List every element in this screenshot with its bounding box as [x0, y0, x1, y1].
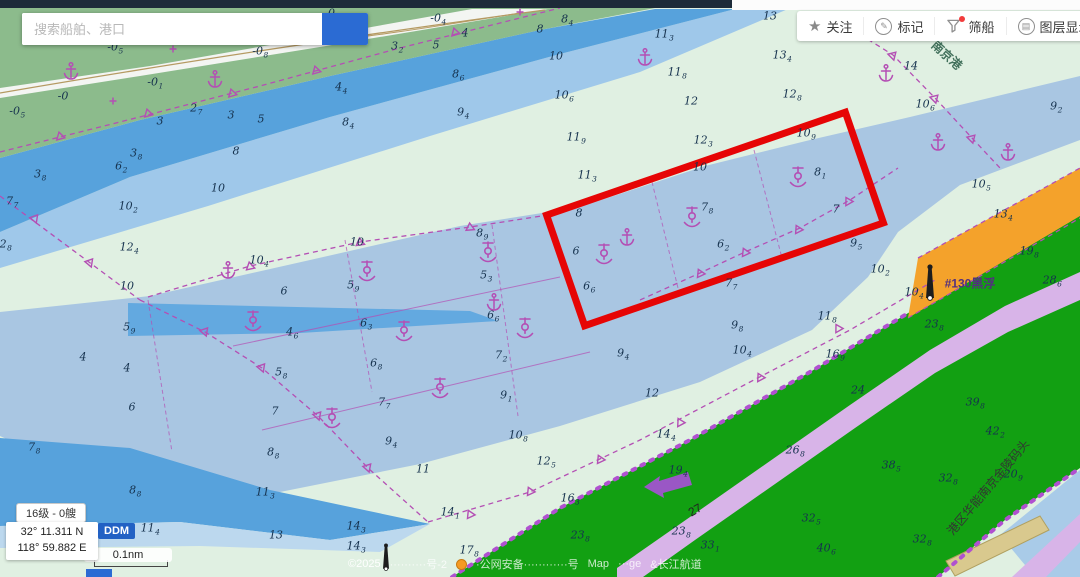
depth-sounding: 143	[347, 540, 366, 553]
depth-sounding: 134	[994, 208, 1013, 221]
depth-sounding: 77	[378, 396, 390, 409]
anchor-symbol	[639, 49, 652, 65]
layers-label: 图层显示	[1040, 17, 1080, 36]
funnel-icon	[946, 18, 963, 35]
depth-sounding: 118	[668, 66, 687, 79]
depth-sounding: 8	[233, 145, 240, 158]
depth-sounding: 106	[555, 89, 574, 102]
depth-sounding: 72	[495, 349, 507, 362]
boundary-dashed-line	[640, 168, 898, 300]
depth-sounding: 118	[818, 310, 837, 323]
depth-sounding: 84	[561, 13, 573, 26]
highlight-red-box	[547, 112, 884, 326]
depth-sounding: 10	[120, 280, 134, 293]
depth-sounding: -01	[147, 76, 163, 89]
depth-sounding: 58	[275, 366, 287, 379]
depth-sounding: 144	[657, 428, 676, 441]
depth-sounding: 10	[211, 182, 225, 195]
depth-sounding: 44	[335, 81, 347, 94]
depth-sounding: 8	[576, 207, 583, 220]
depth-sounding: 198	[1020, 245, 1039, 258]
channel-credit: &长江航道	[650, 556, 701, 572]
depth-sounding: 81	[814, 166, 826, 179]
triangle-symbol	[450, 27, 460, 36]
depth-sounding: 113	[578, 169, 597, 182]
depth-sounding: -0	[58, 90, 69, 103]
depth-sounding: 62	[115, 160, 127, 173]
depth-sounding: 77	[6, 195, 18, 208]
depth-sounding: 143	[347, 520, 366, 533]
anchorage-berth-symbol	[433, 378, 448, 398]
search-bar	[22, 13, 368, 45]
triangle-symbol	[695, 268, 706, 278]
depth-sounding: 84	[342, 116, 354, 129]
depth-sounding: 88	[129, 484, 141, 497]
depth-sounding: 94	[457, 106, 469, 119]
triangle-symbol	[740, 247, 751, 257]
depth-sounding: -08	[252, 45, 268, 58]
depth-sounding: 105	[972, 178, 991, 191]
depth-sounding: 8	[537, 23, 544, 36]
anchor-symbol	[65, 63, 78, 79]
depth-sounding: 10	[350, 236, 364, 249]
top-dark-strip	[0, 0, 732, 8]
anchorage-berth-symbol	[481, 242, 496, 262]
depth-sounding: 46	[286, 326, 298, 339]
chart-label: 南京港	[928, 37, 966, 74]
depth-sounding: 88	[267, 446, 279, 459]
depth-sounding: 86	[452, 68, 464, 81]
depth-sounding: 11	[416, 463, 430, 476]
depth-sounding: 38	[34, 168, 46, 181]
anchorage-berth-symbol	[685, 207, 700, 227]
depth-sounding: 108	[509, 429, 528, 442]
boundary-dashed-line	[908, 218, 1080, 318]
depth-sounding: 4	[80, 351, 87, 364]
depth-sounding: 178	[460, 544, 479, 557]
chart-label: 港区华能南京金陵码头	[943, 436, 1033, 539]
partial-blue-badge	[86, 569, 112, 577]
depth-sounding: -05	[9, 105, 25, 118]
depth-sounding: -04	[430, 12, 446, 25]
depth-sounding: 92	[1050, 100, 1062, 113]
depth-sounding: 94	[617, 347, 629, 360]
mark-label: 标记	[897, 17, 923, 36]
depth-sounding: 119	[567, 131, 586, 144]
anchor-symbol	[222, 262, 235, 278]
chart-label: 27	[686, 501, 705, 520]
search-input[interactable]	[22, 13, 322, 45]
triangle-symbol	[143, 108, 153, 117]
depth-sounding: 27	[190, 102, 202, 115]
latitude-value: 32° 11.311 N	[8, 525, 96, 541]
zoom-ships-badge: 16级 - 0艘	[16, 503, 86, 523]
depth-sounding: 169	[826, 348, 845, 361]
anchor-symbol	[209, 71, 222, 87]
depth-sounding: 125	[537, 455, 556, 468]
depth-sounding: 13	[269, 529, 283, 542]
depth-sounding: 12	[645, 387, 659, 400]
anchorage-berth-symbol	[325, 408, 340, 428]
depth-sounding: 94	[385, 435, 397, 448]
longitude-value: 118° 59.882 E	[8, 541, 96, 557]
depth-sounding: 104	[250, 254, 269, 267]
depth-sounding: 328	[913, 533, 932, 546]
depth-sounding: 385	[882, 459, 901, 472]
depth-sounding: 38	[130, 147, 142, 160]
cursor-coordinates: 32° 11.311 N 118° 59.882 E	[6, 522, 98, 560]
depth-sounding: 104	[733, 344, 752, 357]
depth-sounding: 102	[871, 263, 890, 276]
depth-sounding: 5	[258, 113, 265, 126]
depth-sounding: 113	[655, 28, 674, 41]
copyright-text: ©2025	[348, 558, 381, 570]
depth-sounding: 68	[370, 357, 382, 370]
map-fragment: Map	[588, 558, 609, 570]
depth-sounding: 95	[850, 237, 862, 250]
depth-sounding: 238	[925, 318, 944, 331]
depth-sounding: 238	[571, 529, 590, 542]
depth-sounding: 398	[966, 396, 985, 409]
depth-sounding: 89	[476, 227, 488, 240]
depth-sounding: 141	[441, 506, 460, 519]
chart-app: -05-08-0-01-05-04-0832735448438623881032…	[0, 0, 1080, 577]
depth-sounding: 238	[672, 525, 691, 538]
notification-dot	[959, 16, 965, 22]
beacon-icon	[926, 264, 934, 300]
star-icon: ★	[808, 19, 821, 34]
depth-sounding: 53	[480, 269, 492, 282]
depth-sounding: 325	[802, 512, 821, 525]
depth-sounding: 4	[462, 27, 469, 40]
anchorage-berth-symbol	[397, 321, 412, 341]
depth-sounding: 328	[939, 472, 958, 485]
chart-label: #130黑浮	[945, 275, 996, 292]
triangle-symbol	[525, 486, 536, 496]
cross-symbol	[110, 98, 117, 105]
depth-sounding: 13	[763, 10, 777, 23]
coord-format-toggle[interactable]: DDM	[98, 523, 135, 539]
depth-sounding: 5	[433, 39, 440, 52]
badge-icon	[456, 559, 467, 570]
triangle-symbol	[967, 132, 978, 143]
depth-sounding: 114	[141, 522, 160, 535]
anchor-symbol	[880, 65, 893, 81]
depth-sounding: 3	[157, 115, 164, 128]
pencil-circle-icon: ✎	[875, 18, 892, 35]
berth-grid-line	[148, 300, 172, 452]
ge-fragment: ···ge	[618, 558, 641, 570]
depth-sounding: 98	[731, 319, 743, 332]
depth-sounding: 6	[281, 285, 288, 298]
depth-sounding: 163	[561, 492, 580, 505]
triangle-symbol	[888, 49, 899, 60]
depth-sounding: 422	[986, 425, 1005, 438]
depth-sounding: 113	[256, 486, 275, 499]
depth-sounding: 14	[904, 60, 918, 73]
depth-sounding: 6	[129, 401, 136, 414]
depth-sounding: 78	[701, 201, 713, 214]
depth-sounding: 7	[272, 405, 279, 418]
triangle-symbol	[200, 325, 211, 336]
triangle-symbol	[30, 212, 41, 223]
cross-symbol	[170, 46, 177, 53]
depth-sounding: 268	[786, 444, 805, 457]
top-light-strip	[732, 0, 1080, 10]
depth-sounding: 10	[693, 161, 707, 174]
triangle-symbol	[257, 361, 268, 372]
triangle-symbol	[85, 256, 96, 267]
search-button[interactable]	[322, 13, 368, 45]
depth-sounding: 24	[851, 384, 865, 397]
gongan-fragment: ·公网安备············号	[476, 556, 579, 572]
anchorage-berth-symbol	[597, 244, 612, 264]
depth-sounding: 66	[583, 280, 595, 293]
depth-sounding: 77	[725, 277, 737, 290]
depth-sounding: 134	[773, 49, 792, 62]
triangle-symbol	[313, 409, 324, 420]
depth-sounding: 194	[669, 464, 688, 477]
depth-sounding: 12	[684, 95, 698, 108]
triangle-symbol	[465, 223, 474, 231]
triangle-symbol	[754, 371, 765, 381]
triangle-symbol	[595, 454, 606, 464]
depth-sounding: 59	[347, 279, 359, 292]
depth-sounding: 106	[916, 98, 935, 111]
depth-sounding: 406	[817, 542, 836, 555]
triangle-symbol	[792, 224, 803, 234]
boundary-dashed-line	[845, 25, 1000, 168]
map-attribution: ©2025 ··········号-2 ·公网安备············号 M…	[348, 556, 702, 572]
anchorage-berth-symbol	[518, 318, 533, 338]
cross-symbol	[517, 9, 524, 16]
layers-circle-icon: ▤	[1018, 18, 1035, 35]
berth-grid-line	[754, 150, 782, 258]
boundary-dashed-line	[140, 300, 428, 522]
anchor-symbol	[932, 134, 945, 150]
depth-sounding: 59	[123, 321, 135, 334]
triangle-symbol	[674, 416, 685, 426]
depth-sounding: 124	[120, 241, 139, 254]
berth-grid-line	[262, 352, 590, 430]
depth-sounding: 128	[783, 88, 802, 101]
berth-grid-line	[652, 182, 678, 288]
filter-ships-label: 筛船	[968, 17, 994, 36]
depth-sounding: 6	[573, 245, 580, 258]
map-toolbar: ★ 关注 ✎ 标记 筛船 ▤ 图层显示 ◪	[797, 11, 1080, 41]
depth-sounding: 78	[28, 441, 40, 454]
anchor-symbol	[1002, 144, 1015, 160]
toolbar-filter-ships-button[interactable]: 筛船	[934, 17, 1005, 35]
depth-sounding: 102	[119, 200, 138, 213]
depth-sounding: 4	[124, 362, 131, 375]
depth-sounding: 331	[701, 539, 720, 552]
depth-sounding: 32	[391, 40, 403, 53]
depth-sounding: 91	[500, 389, 512, 402]
anchorage-berth-symbol	[246, 311, 261, 331]
anchorage-berth-symbol	[791, 167, 806, 187]
triangle-symbol	[227, 88, 237, 97]
depth-sounding: 63	[360, 317, 372, 330]
toolbar-layers-button[interactable]: ▤ 图层显示	[1006, 17, 1080, 35]
depth-sounding: 3	[228, 109, 235, 122]
triangle-symbol	[55, 131, 65, 140]
depth-sounding: 10	[549, 50, 563, 63]
depth-sounding: 109	[797, 127, 816, 140]
depth-sounding: 7	[833, 203, 840, 216]
triangle-symbol	[363, 461, 374, 472]
toolbar-follow-button[interactable]: ★ 关注	[797, 17, 863, 35]
triangle-symbol	[465, 509, 476, 519]
depth-sounding: 128	[0, 238, 11, 251]
follow-label: 关注	[826, 17, 852, 36]
anchorage-berth-symbol	[360, 261, 375, 281]
toolbar-mark-button[interactable]: ✎ 标记	[863, 17, 934, 35]
triangle-symbol	[842, 195, 853, 205]
depth-sounding: 123	[694, 134, 713, 147]
icp-fragment: ··········号-2	[390, 556, 447, 572]
triangle-symbol	[311, 65, 321, 74]
anchor-symbol	[621, 229, 634, 245]
depth-sounding: 66	[487, 309, 499, 322]
depth-sounding: 286	[1043, 274, 1062, 287]
depth-sounding: 62	[717, 238, 729, 251]
depth-sounding: 104	[905, 286, 924, 299]
